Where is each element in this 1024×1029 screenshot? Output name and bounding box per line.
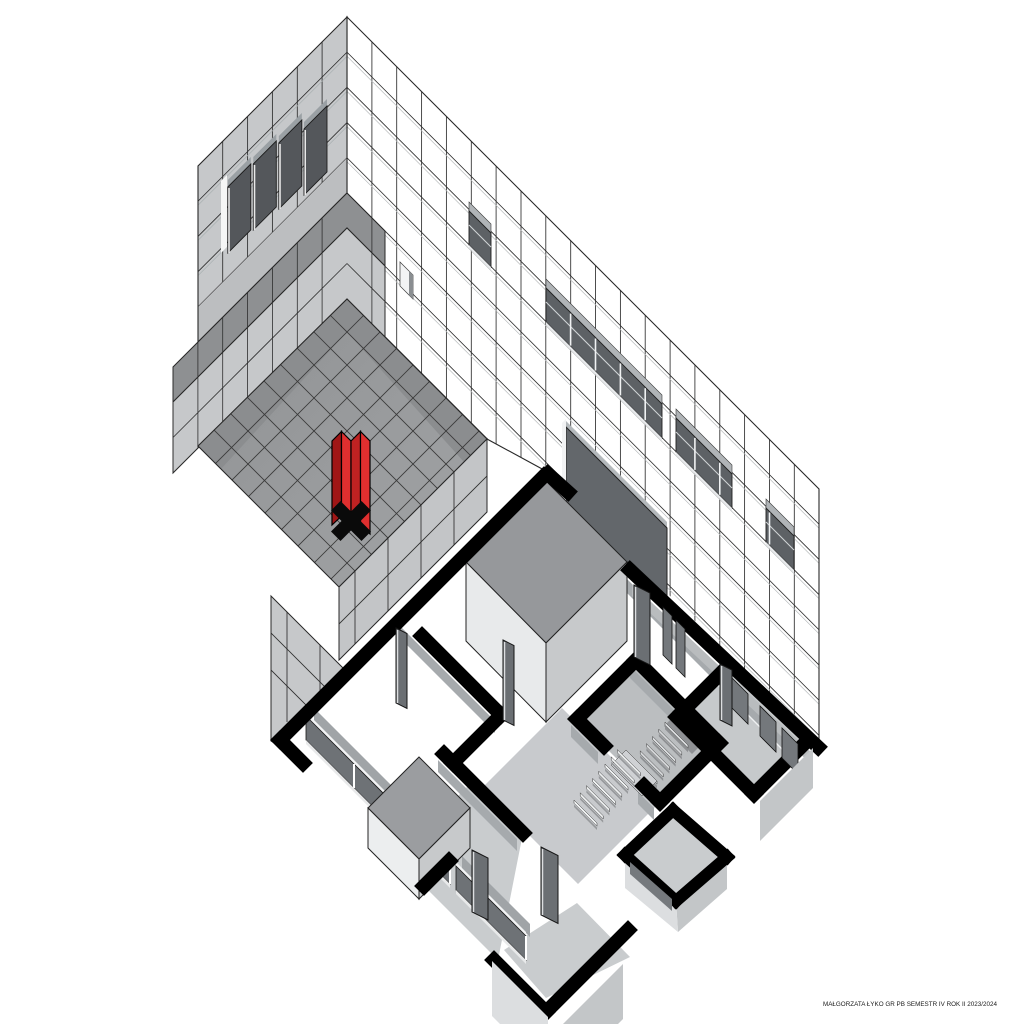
svg-text:MAŁGORZATA ŁYKO GR PB SEMESTR: MAŁGORZATA ŁYKO GR PB SEMESTR IV ROK II … (823, 1001, 998, 1008)
